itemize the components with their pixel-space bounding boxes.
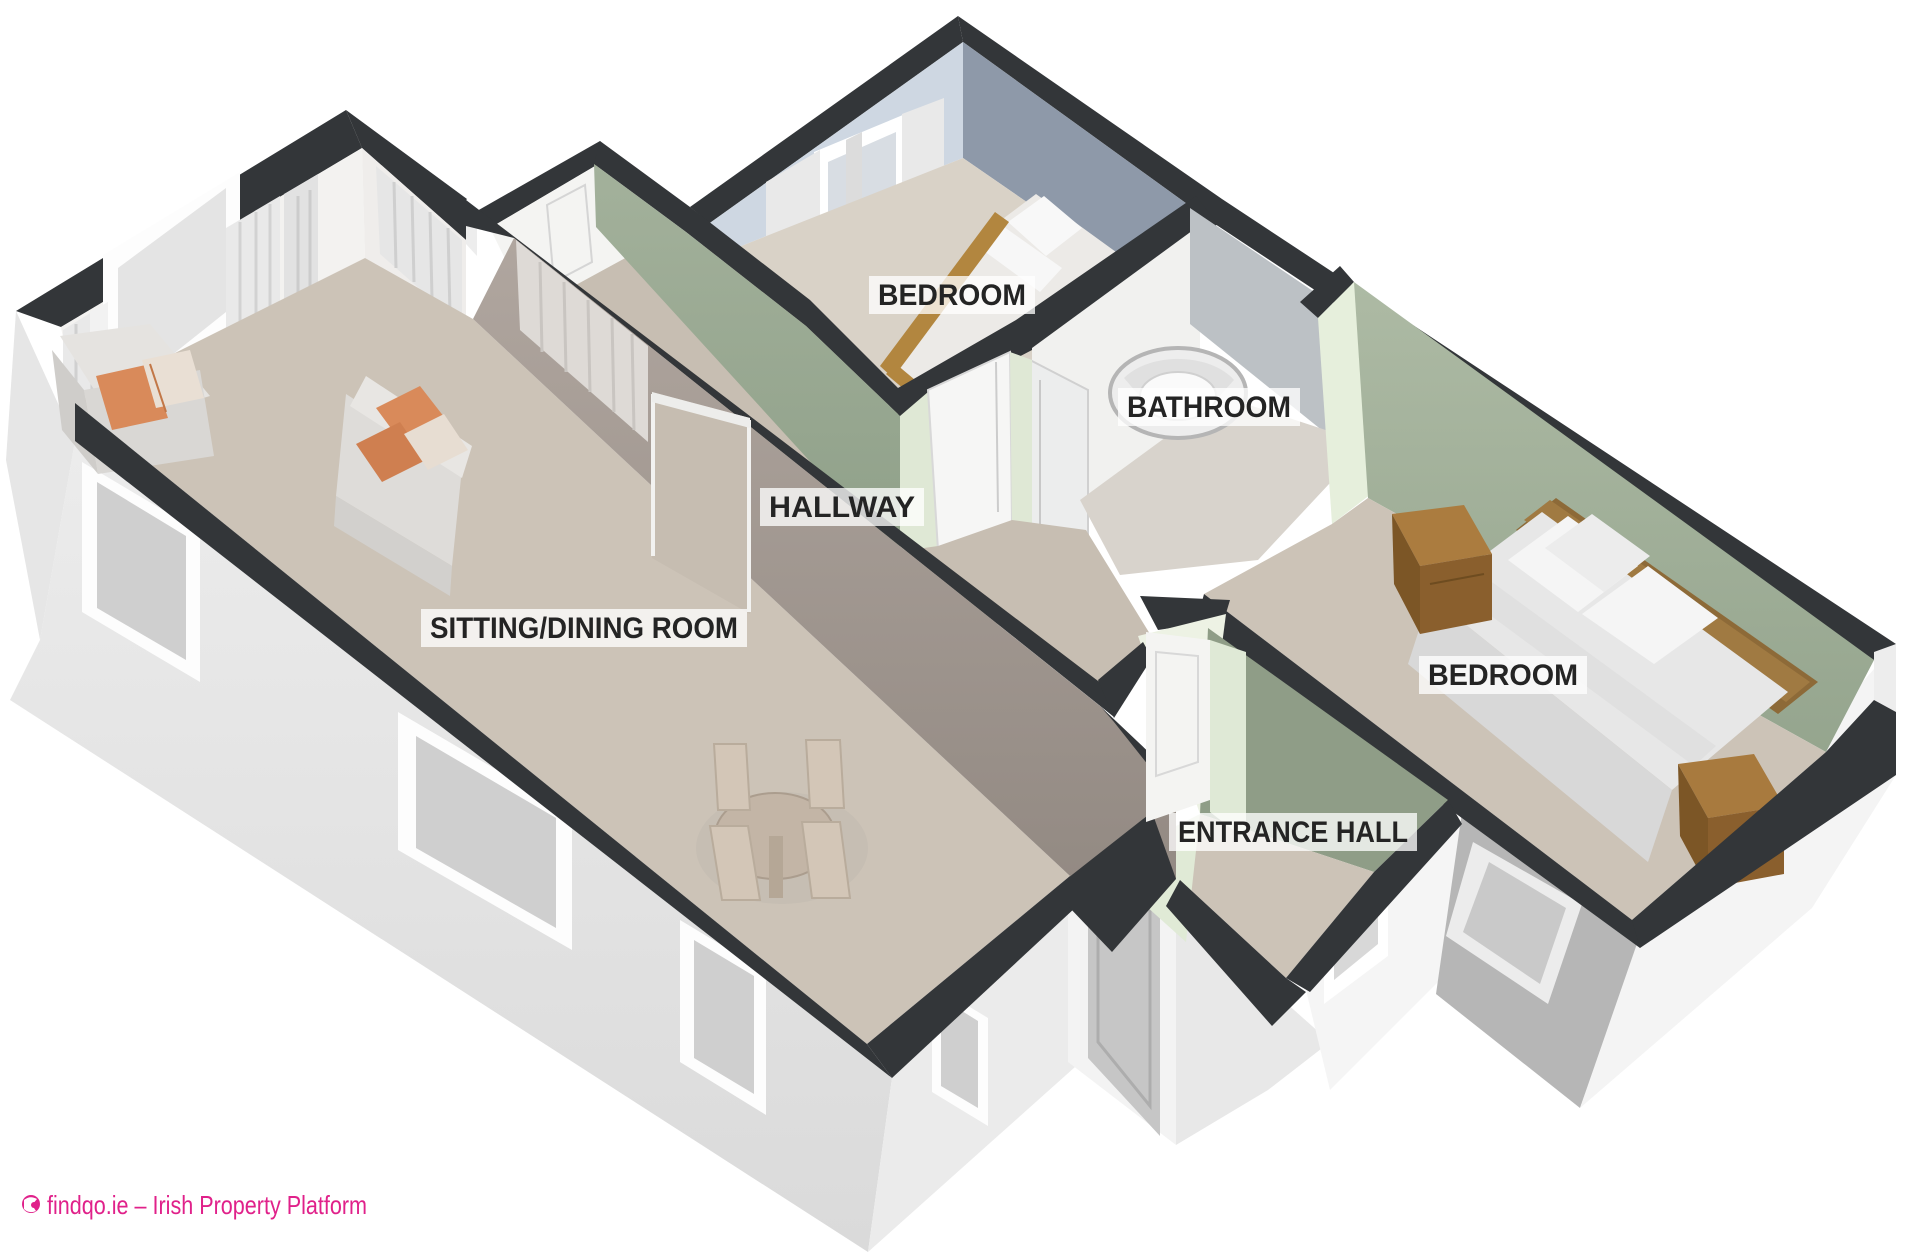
- svg-text:ENTRANCE HALL: ENTRANCE HALL: [1178, 816, 1408, 849]
- svg-text:BEDROOM: BEDROOM: [1428, 659, 1578, 692]
- svg-text:BATHROOM: BATHROOM: [1127, 391, 1291, 424]
- svg-text:SITTING/DINING ROOM: SITTING/DINING ROOM: [430, 612, 738, 645]
- svg-text:HALLWAY: HALLWAY: [769, 491, 915, 524]
- svg-text:BEDROOM: BEDROOM: [878, 279, 1026, 312]
- svg-text:findqo.ie – Irish Property Pla: findqo.ie – Irish Property Platform: [47, 1190, 367, 1220]
